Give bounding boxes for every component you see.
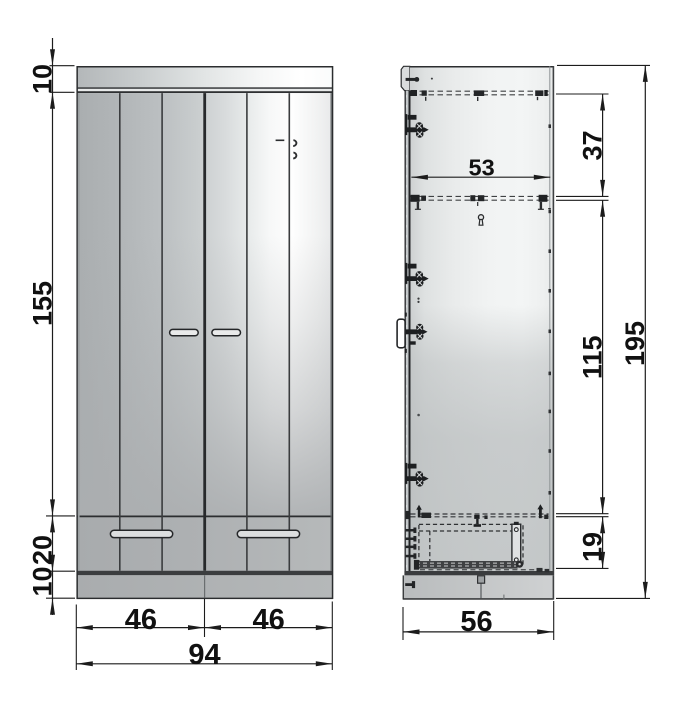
- svg-text:19: 19: [578, 532, 608, 562]
- svg-text:53: 53: [469, 154, 495, 180]
- svg-text:10: 10: [28, 566, 58, 596]
- svg-text:56: 56: [460, 606, 492, 638]
- svg-text:94: 94: [188, 639, 220, 671]
- svg-text:20: 20: [28, 535, 58, 565]
- svg-text:37: 37: [578, 130, 608, 160]
- svg-text:10: 10: [28, 64, 58, 94]
- svg-text:155: 155: [28, 281, 58, 326]
- svg-text:195: 195: [620, 321, 650, 366]
- svg-text:46: 46: [252, 604, 284, 636]
- svg-text:46: 46: [125, 604, 157, 636]
- svg-text:115: 115: [578, 336, 608, 380]
